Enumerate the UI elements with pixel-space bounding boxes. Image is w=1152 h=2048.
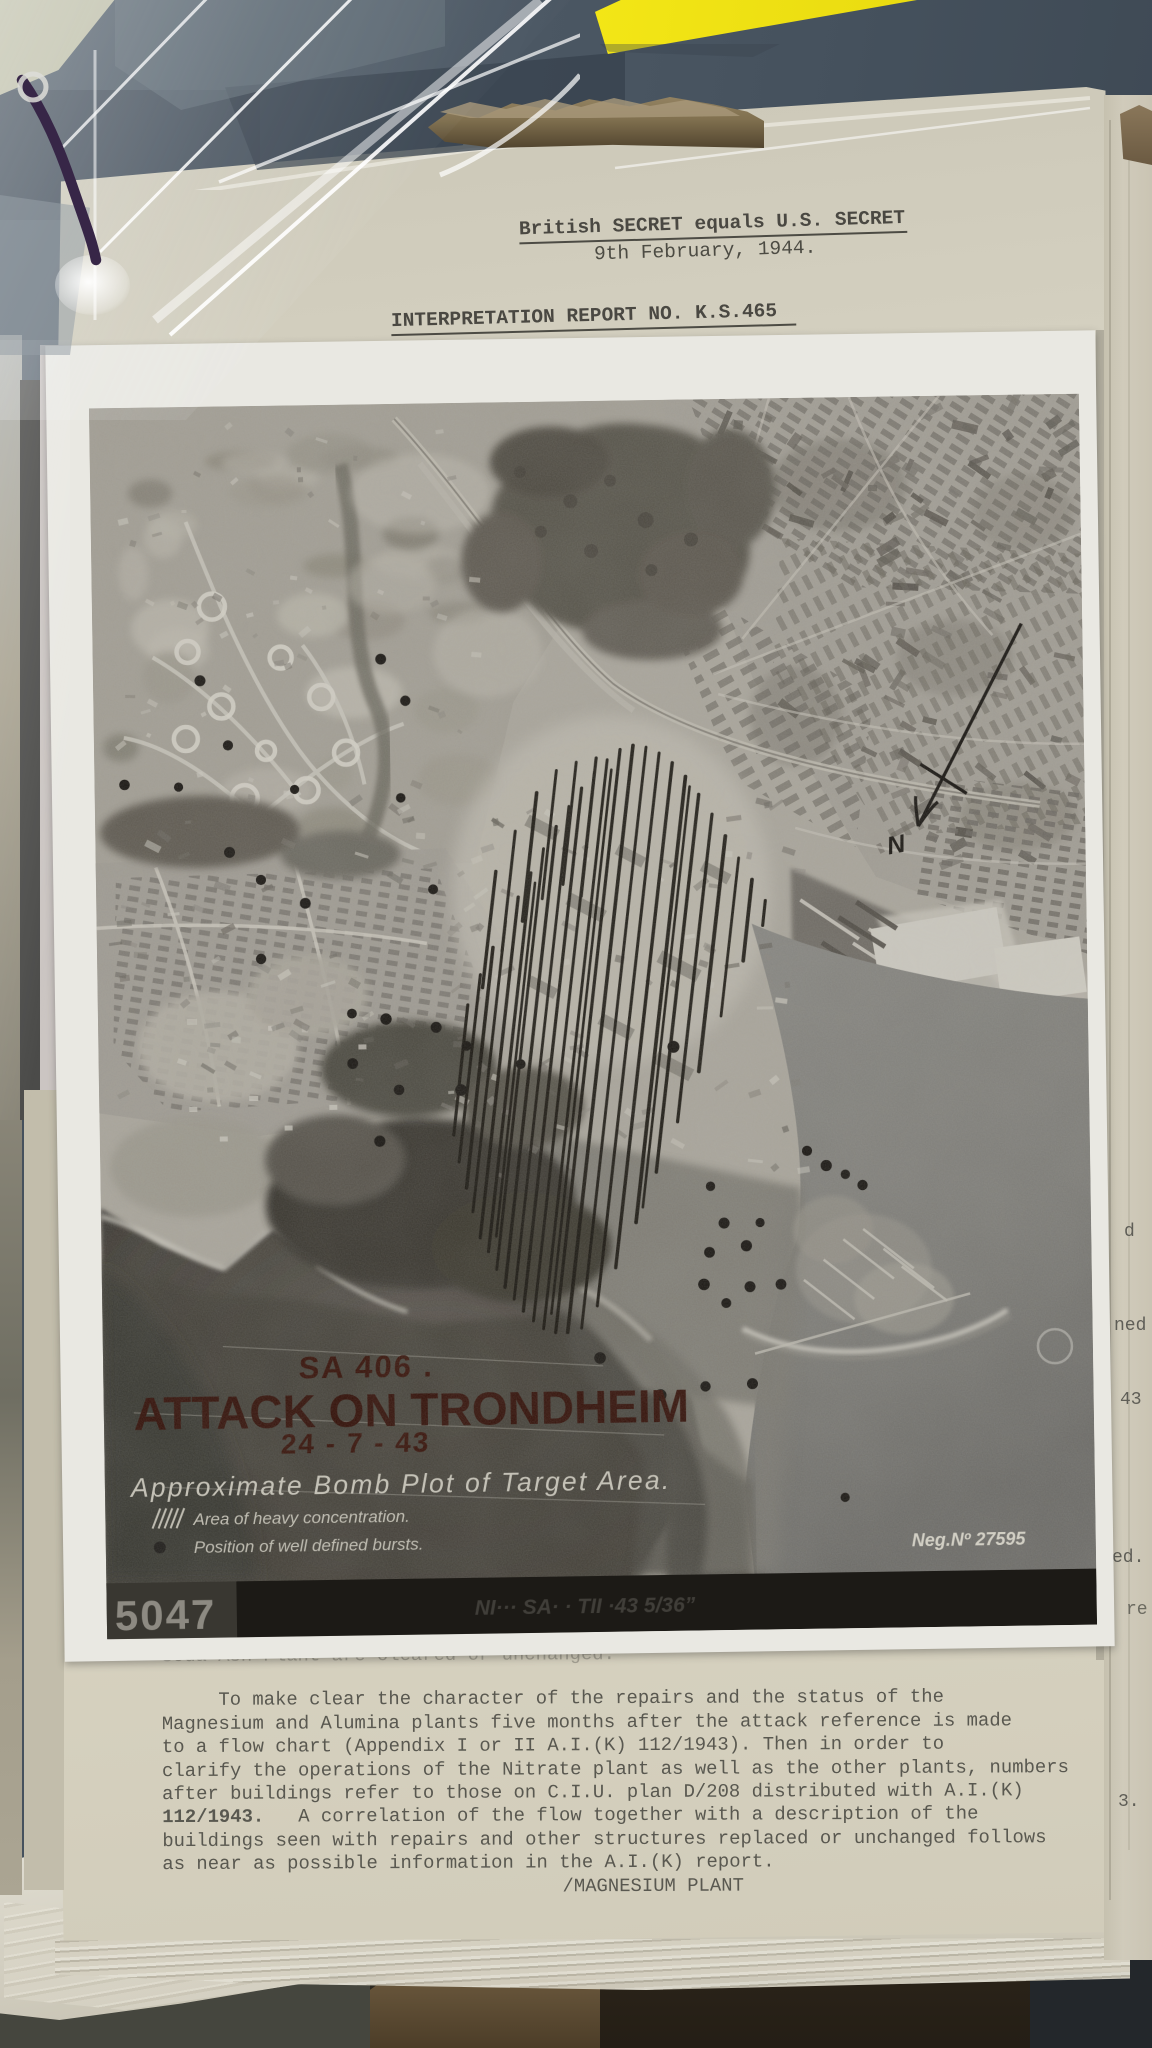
svg-text:NI··· SA· · TII ·43 5/36”: NI··· SA· · TII ·43 5/36” [475,1594,696,1620]
